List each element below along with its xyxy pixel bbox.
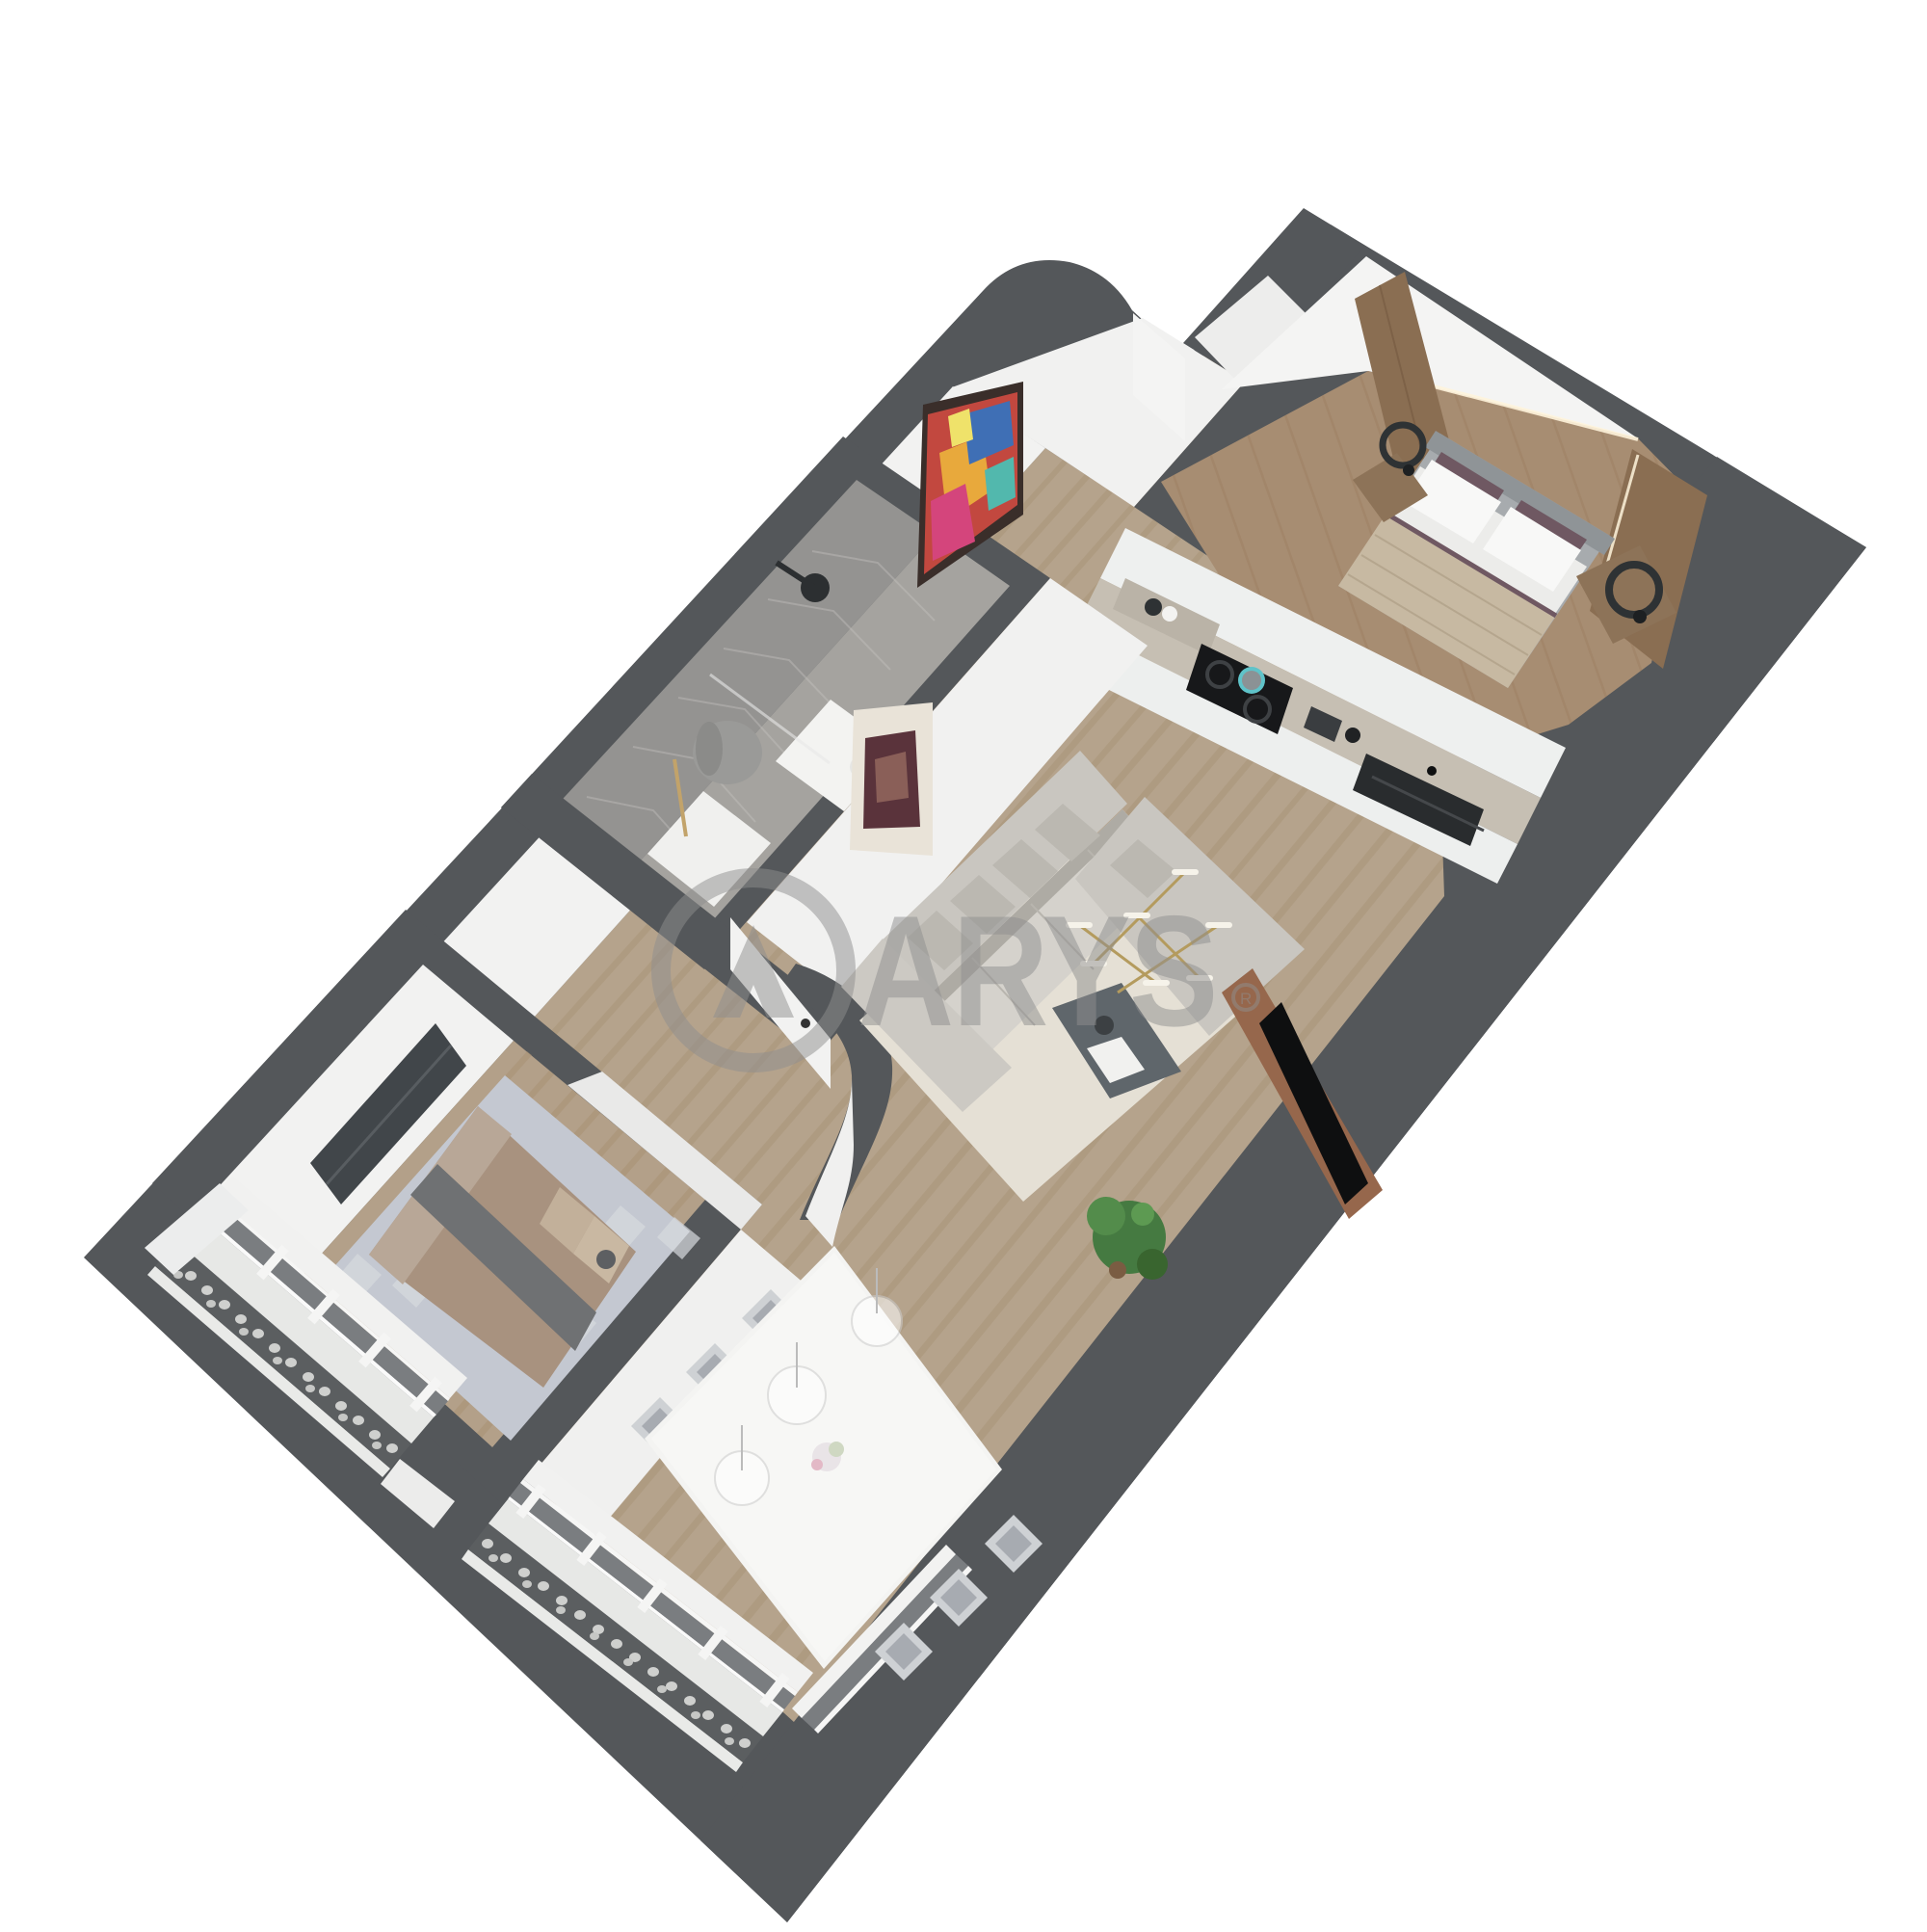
svg-text:R: R xyxy=(1240,990,1252,1008)
svg-text:ARYS: ARYS xyxy=(858,884,1217,1059)
